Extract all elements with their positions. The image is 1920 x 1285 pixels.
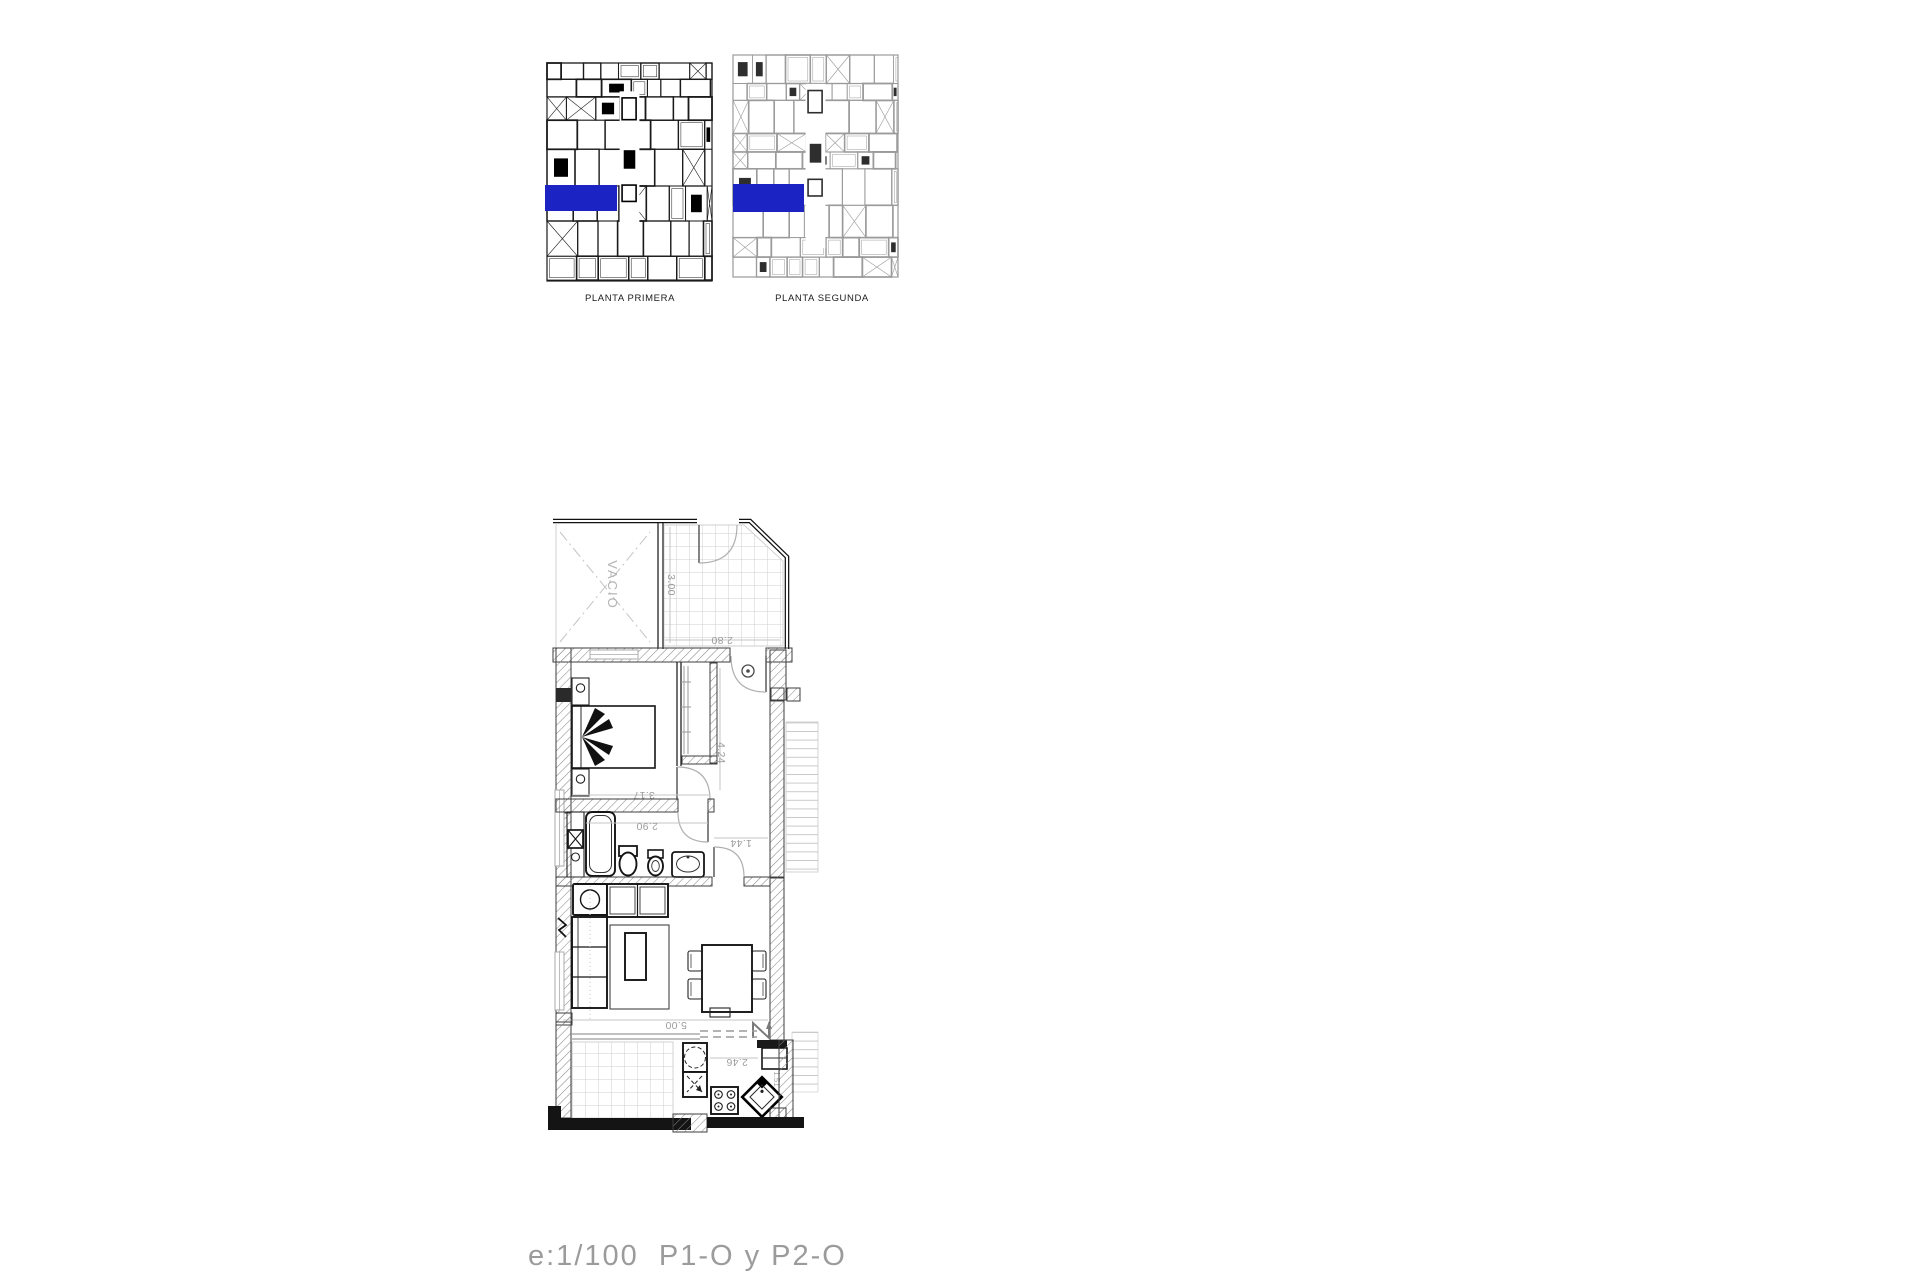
bathroom-sink xyxy=(672,852,704,877)
highlighted-unit-planta-primera xyxy=(545,185,617,211)
dining-table xyxy=(702,945,752,1017)
svg-text:5.00: 5.00 xyxy=(665,1019,687,1031)
highlighted-unit-planta-segunda xyxy=(733,184,804,212)
wall-bottom-center xyxy=(673,1114,707,1132)
bathtub xyxy=(586,812,615,876)
neighbor-terrace-railing xyxy=(792,1032,818,1092)
living-window xyxy=(555,952,564,1010)
living-room-door xyxy=(714,847,744,877)
ceiling-lamp xyxy=(742,665,754,677)
sliding-door xyxy=(572,1031,757,1039)
svg-text:2.90: 2.90 xyxy=(636,820,658,832)
wall-top xyxy=(553,648,730,662)
wall-terrace-left xyxy=(556,1022,571,1118)
wall-right-living xyxy=(770,877,784,1040)
double-bed xyxy=(572,706,655,768)
svg-text:2.46: 2.46 xyxy=(726,1056,748,1068)
minimap-planta-primera xyxy=(547,63,712,281)
scale-note: e:1/100 P1-O y P2-O xyxy=(528,1240,847,1273)
bidet xyxy=(648,850,663,876)
wall-bathroom-top-stub xyxy=(708,799,714,812)
dishwasher xyxy=(683,1072,707,1097)
svg-text:4.24: 4.24 xyxy=(715,742,727,764)
wall-bathroom-top xyxy=(556,799,678,812)
pillar-block-1 xyxy=(771,688,784,701)
wall-living-top-stub xyxy=(744,877,770,886)
wall-bottom-terrace xyxy=(548,1118,691,1130)
plan-drawing: PLANTA PRIMERA PLANTA SEGUNDA VACIO xyxy=(0,0,1920,1280)
svg-text:3.00: 3.00 xyxy=(665,574,677,596)
bathroom-door xyxy=(678,812,708,842)
nightstand-bottom xyxy=(572,769,589,796)
main-floor-plan: VACIO 3.00 2.80 xyxy=(548,521,818,1132)
fridge xyxy=(683,1043,707,1072)
void-area: VACIO xyxy=(556,523,650,648)
closet xyxy=(681,663,717,764)
void-terrace-divider-wall xyxy=(658,523,663,649)
rear-terrace-tiles xyxy=(572,1042,673,1118)
void-label: VACIO xyxy=(605,560,620,610)
entry-door xyxy=(731,656,766,692)
bedroom-hall-wall xyxy=(677,662,681,766)
label-planta-primera: PLANTA PRIMERA xyxy=(585,293,675,304)
pillar-block-2 xyxy=(787,688,800,701)
drawing-sheet: PLANTA PRIMERA PLANTA SEGUNDA VACIO xyxy=(0,0,1920,1280)
wall-left-bedroom xyxy=(556,648,571,813)
toilet xyxy=(619,846,637,876)
north-arrow-icon xyxy=(753,1021,772,1038)
nightstand-top xyxy=(572,678,589,705)
coffee-table xyxy=(625,933,646,980)
svg-text:2.80: 2.80 xyxy=(711,634,733,646)
wall-bottom-kitchen xyxy=(707,1117,804,1128)
wall-right-hall xyxy=(770,700,784,878)
bedroom-window xyxy=(590,650,638,659)
stove xyxy=(711,1087,738,1114)
pillar-left xyxy=(556,688,571,702)
entrance-terrace-tiles xyxy=(664,525,783,646)
communal-stairs xyxy=(786,722,818,872)
minimap-planta-segunda xyxy=(733,55,898,277)
dim-kitchen-width: 2.46 xyxy=(710,1056,758,1068)
label-planta-segunda: PLANTA SEGUNDA xyxy=(775,293,869,304)
svg-text:1.44: 1.44 xyxy=(730,837,752,849)
